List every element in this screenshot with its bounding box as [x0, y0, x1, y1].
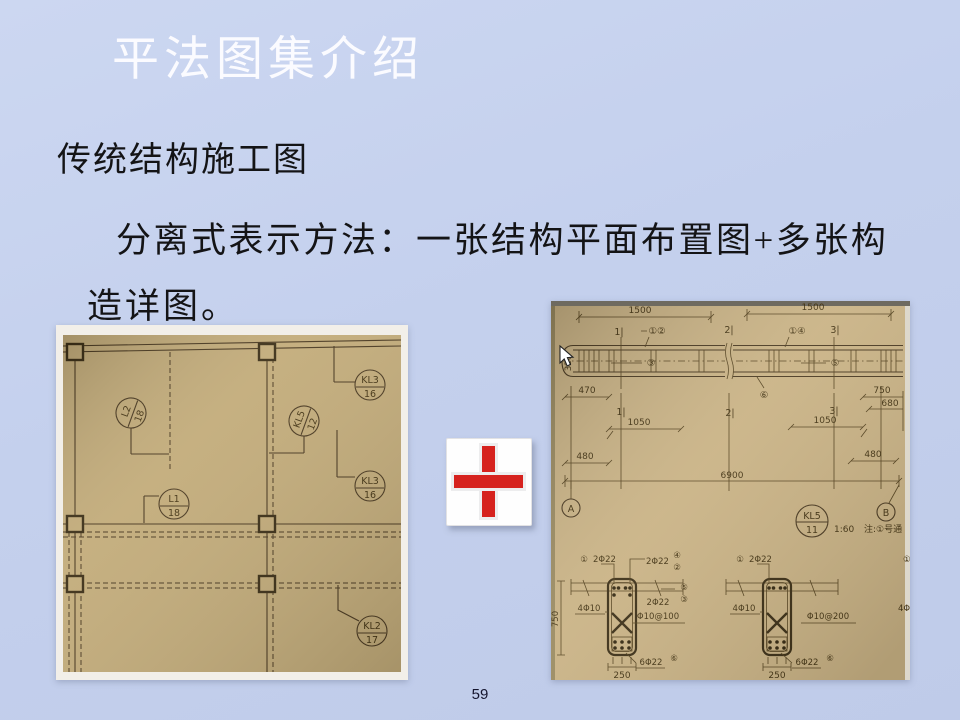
plus-icon [446, 438, 532, 526]
detail-drawing-image: 1500 1500 1| ①② 2| ①④ 3| [551, 301, 910, 680]
structural-plan-image: L2 18 KL5 12 KL3 16 KL3 16 L1 18 KL2 17 [56, 325, 408, 680]
page-number: 59 [430, 686, 530, 703]
structural-plan-drawing: L2 18 KL5 12 KL3 16 KL3 16 L1 18 KL2 17 [56, 325, 408, 680]
beam-detail-drawing: 1500 1500 1| ①② 2| ①④ 3| [551, 301, 910, 680]
slide-title: 平法图集介绍 [112, 20, 424, 89]
paragraph-method-line2: 造详图。 [87, 278, 239, 329]
paragraph-method-line1: 分离式表示方法：一张结构平面布置图+多张构 [116, 212, 888, 263]
slide: 平法图集介绍 传统结构施工图 分离式表示方法：一张结构平面布置图+多张构 造详图… [0, 0, 960, 720]
paragraph-traditional: 传统结构施工图 [57, 132, 309, 181]
plus-vertical-bar-overlay [482, 446, 495, 517]
